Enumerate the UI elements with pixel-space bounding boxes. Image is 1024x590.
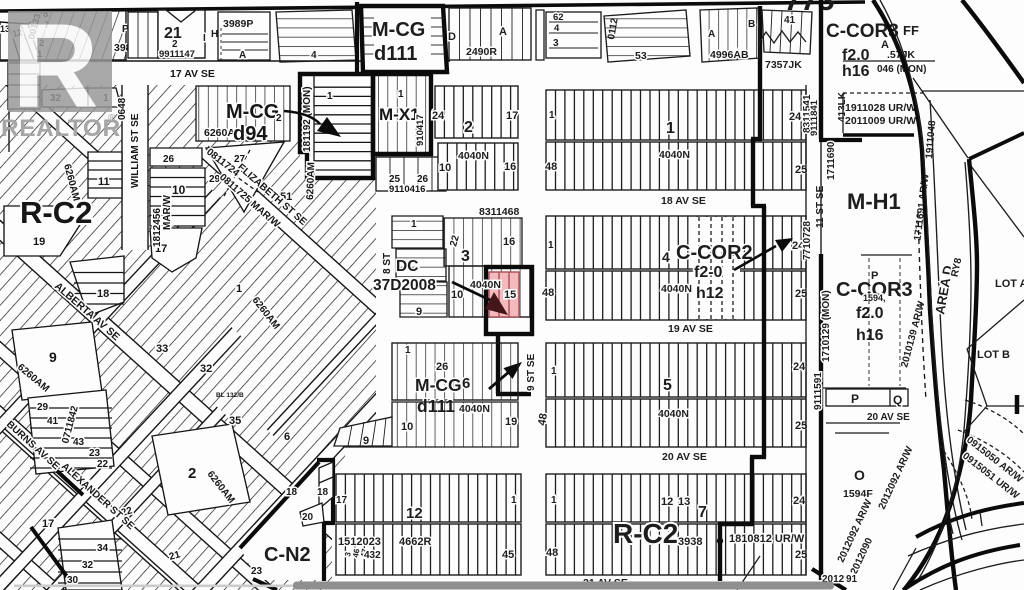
svg-text:M-CG: M-CG [415,375,462,395]
svg-text:34: 34 [97,543,109,554]
svg-text:24: 24 [789,111,802,123]
svg-text:WILLIAM ST SE: WILLIAM ST SE [130,113,141,188]
svg-text:4040N: 4040N [459,403,490,415]
svg-text:181192 (MON): 181192 (MON) [302,86,313,152]
svg-text:M-CG: M-CG [226,101,279,123]
svg-text:11: 11 [98,176,110,188]
svg-text:M-H1: M-H1 [847,189,901,214]
svg-text:13: 13 [678,496,690,508]
svg-text:h16: h16 [856,327,884,344]
svg-text:432: 432 [364,550,381,561]
svg-text:48: 48 [536,412,550,426]
svg-text:4662R: 4662R [399,536,431,548]
svg-text:8 ST: 8 ST [382,253,393,274]
svg-text:h16: h16 [842,63,870,80]
svg-text:1: 1 [405,345,411,356]
svg-text:12: 12 [661,496,673,508]
svg-text:1: 1 [236,283,242,295]
svg-text:32: 32 [82,560,94,571]
svg-text:19: 19 [33,236,45,248]
svg-text:2: 2 [276,113,282,124]
svg-text:32: 32 [200,363,212,375]
svg-text:D: D [448,31,456,43]
svg-text:12: 12 [406,505,423,522]
svg-text:3: 3 [461,248,470,265]
svg-text:046 (MON): 046 (MON) [877,64,926,75]
svg-text:P: P [851,392,859,406]
svg-text:41: 41 [47,416,59,427]
svg-text:®: ® [108,113,116,124]
svg-text:C-COR2: C-COR2 [676,242,753,264]
svg-text:16: 16 [504,161,516,173]
svg-text:17: 17 [506,110,518,122]
svg-text:7: 7 [698,504,707,521]
svg-text:9: 9 [363,435,369,447]
svg-text:19: 19 [505,416,517,428]
svg-text:18: 18 [97,288,109,300]
svg-text:1: 1 [398,89,404,100]
svg-text:2490R: 2490R [466,46,497,58]
svg-text:7710728: 7710728 [802,221,813,260]
svg-text:6: 6 [462,375,470,392]
svg-text:d111: d111 [374,43,417,65]
svg-text:5: 5 [663,377,672,394]
svg-text:MAR/W: MAR/W [162,194,173,230]
svg-text:h12: h12 [696,285,724,302]
svg-text:4: 4 [554,23,560,34]
svg-text:P: P [871,270,878,282]
svg-text:1711690: 1711690 [826,141,837,180]
svg-text:22: 22 [97,459,109,470]
svg-text:3938: 3938 [678,536,702,548]
svg-text:FF: FF [903,23,919,38]
svg-text:C-N2: C-N2 [264,544,311,566]
svg-text:29: 29 [37,402,49,413]
svg-text:24: 24 [793,495,806,507]
svg-text:43: 43 [73,437,85,448]
svg-text:1: 1 [511,495,517,506]
svg-text:A: A [239,50,246,61]
svg-text:62: 62 [553,12,564,23]
svg-text:9: 9 [416,306,422,318]
svg-text:M-CG: M-CG [372,19,425,41]
svg-text:Q: Q [893,393,902,407]
svg-text:20 AV SE: 20 AV SE [662,451,707,463]
svg-text:2: 2 [188,465,196,482]
svg-text:4040N: 4040N [458,150,489,162]
svg-text:4040N: 4040N [659,149,690,161]
svg-text:48: 48 [542,287,554,299]
svg-text:1594F: 1594F [843,488,873,500]
svg-text:REALTOR: REALTOR [1,115,121,142]
svg-text:20 AV SE: 20 AV SE [867,412,910,423]
svg-text:18 AV SE: 18 AV SE [661,195,706,207]
svg-text:35: 35 [229,415,241,427]
svg-text:17 AV SE: 17 AV SE [170,68,215,80]
svg-text:10: 10 [401,421,413,433]
svg-text:R: R [12,0,99,133]
svg-text:2011009 UR/W: 2011009 UR/W [845,115,916,127]
svg-text:30: 30 [67,575,79,586]
svg-text:6: 6 [284,431,290,443]
svg-text:A: A [708,29,715,40]
svg-text:3989P: 3989P [223,18,253,30]
svg-text:9 ST SE: 9 ST SE [526,353,537,391]
svg-text:1: 1 [666,120,675,137]
svg-text:1: 1 [411,219,417,230]
svg-text:91: 91 [846,574,858,585]
svg-text:1594,: 1594, [863,293,886,303]
svg-text:18: 18 [286,487,298,498]
svg-text:9: 9 [49,349,57,365]
svg-text:1: 1 [551,366,557,377]
svg-text:33: 33 [156,343,168,355]
svg-text:d94: d94 [233,123,268,145]
svg-text:1810812 UR/W: 1810812 UR/W [729,533,805,545]
svg-text:3: 3 [553,38,559,49]
svg-text:16: 16 [503,236,515,248]
svg-text:9111841: 9111841 [809,99,820,136]
svg-text:4040N: 4040N [661,283,692,295]
svg-text:I: I [203,33,206,44]
svg-text:4: 4 [311,50,317,61]
svg-text:1: 1 [327,91,333,102]
svg-text:4040N: 4040N [470,279,501,291]
svg-text:19 AV SE: 19 AV SE [668,323,713,335]
svg-text:17: 17 [336,495,348,506]
svg-text:15: 15 [504,289,516,301]
svg-text:1512023: 1512023 [338,536,381,548]
svg-text:LOT B: LOT B [977,349,1010,361]
svg-text:26: 26 [163,154,175,165]
svg-text:24: 24 [432,110,445,122]
svg-text:37D2008: 37D2008 [373,277,436,294]
svg-text:9110416: 9110416 [389,184,425,195]
svg-text:17: 17 [42,518,54,530]
svg-text:6260AM: 6260AM [305,162,317,200]
svg-text:7357JK: 7357JK [765,59,802,71]
svg-text:4: 4 [662,249,670,265]
svg-text:10: 10 [172,183,186,197]
svg-text:48: 48 [545,161,557,173]
svg-text:1: 1 [548,240,554,251]
svg-text:23: 23 [251,566,263,577]
svg-text:10: 10 [439,162,451,174]
svg-text:R-C2: R-C2 [613,518,678,549]
svg-text:53: 53 [635,50,647,62]
svg-text:24: 24 [793,361,806,373]
svg-text:R-C2: R-C2 [20,195,92,230]
svg-text:2: 2 [464,119,473,136]
svg-text:1: 1 [551,495,557,506]
svg-text:LOT A: LOT A [995,278,1024,290]
svg-text:41: 41 [784,15,796,26]
svg-text:9911147: 9911147 [159,49,195,60]
svg-text:H: H [211,29,218,40]
svg-text:9111591: 9111591 [813,372,824,410]
svg-text:26: 26 [436,361,448,373]
svg-text:1: 1 [549,110,555,121]
svg-text:910417: 910417 [415,114,426,146]
svg-text:18: 18 [317,487,329,498]
svg-text:48: 48 [546,547,558,559]
svg-text:6260A: 6260A [204,127,235,139]
svg-text:B: B [748,19,755,30]
svg-text:BL 132/B: BL 132/B [216,392,244,399]
svg-text:DC: DC [396,258,418,275]
svg-text:A: A [499,26,507,38]
svg-text:M-X1: M-X1 [379,105,420,124]
svg-text:4996AB: 4996AB [710,49,749,61]
svg-text:f2.0: f2.0 [856,305,884,322]
svg-text:8311468: 8311468 [479,206,519,218]
svg-text:4040N: 4040N [658,408,689,420]
svg-text:23: 23 [89,448,101,459]
svg-text:20: 20 [302,512,314,523]
svg-text:10: 10 [451,289,463,301]
svg-text:45: 45 [502,549,514,561]
svg-text:O: O [854,467,865,483]
svg-text:f2-0: f2-0 [694,264,723,281]
svg-text:1911028 UR/W: 1911028 UR/W [845,102,916,114]
svg-text:1710129 (MON): 1710129 (MON) [821,290,832,362]
